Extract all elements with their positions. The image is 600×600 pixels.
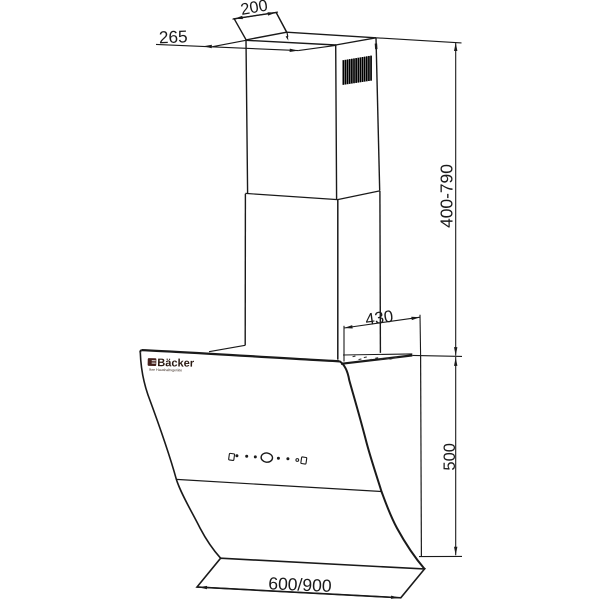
svg-text:600/900: 600/900 xyxy=(268,573,332,596)
svg-text:Ihre Haushaltsgeräte: Ihre Haushaltsgeräte xyxy=(149,368,182,373)
svg-text:500: 500 xyxy=(441,443,459,471)
svg-text:400-790: 400-790 xyxy=(436,164,456,228)
svg-text:430: 430 xyxy=(364,307,394,330)
svg-text:265: 265 xyxy=(158,26,188,47)
